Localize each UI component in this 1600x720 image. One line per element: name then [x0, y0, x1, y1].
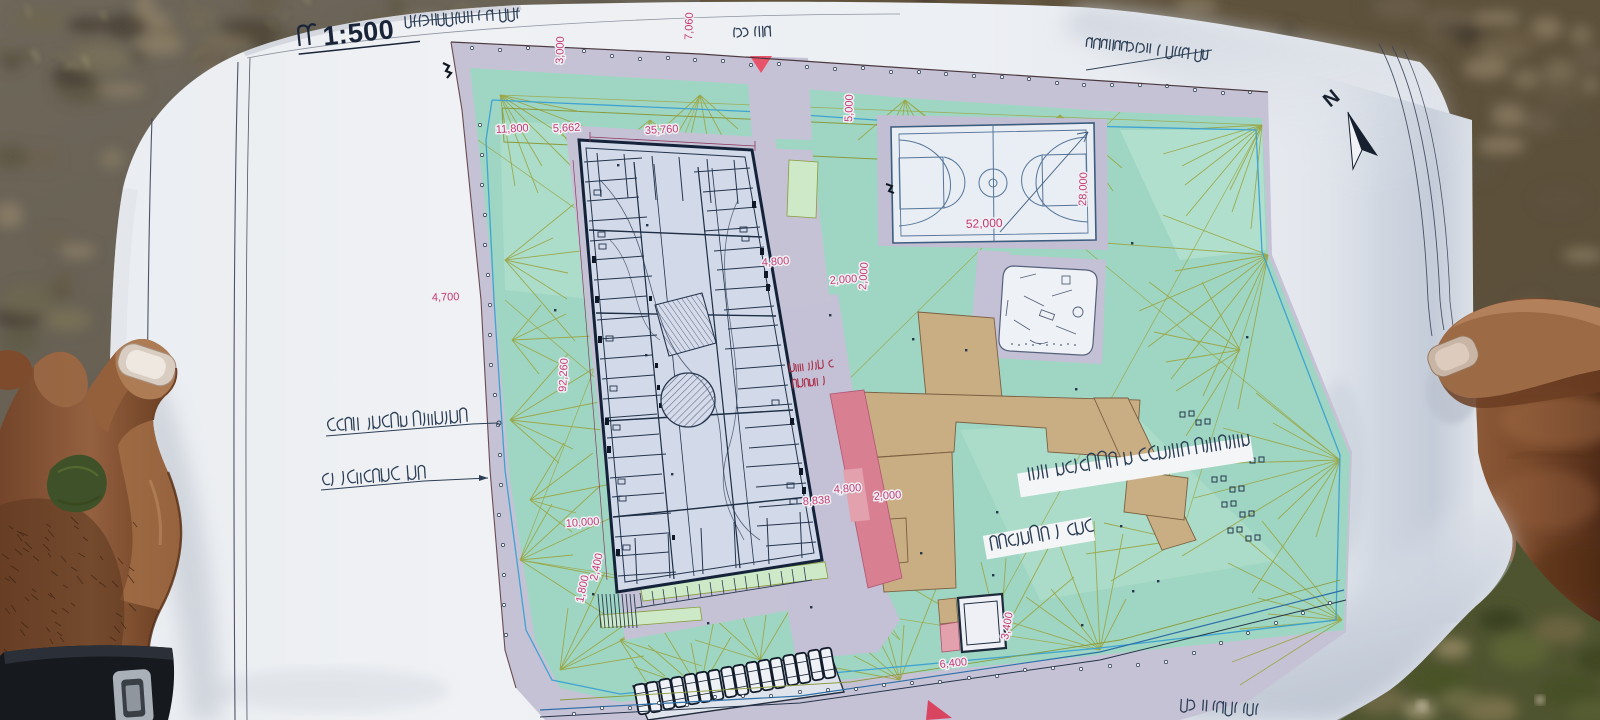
svg-text:28,000: 28,000 — [1077, 172, 1090, 206]
svg-text:4,700: 4,700 — [432, 291, 460, 304]
svg-text:4,800: 4,800 — [761, 255, 789, 269]
svg-text:8,838: 8,838 — [802, 494, 830, 508]
svg-text:2,000: 2,000 — [829, 273, 857, 287]
svg-text:5,662: 5,662 — [553, 122, 581, 135]
svg-text:2,000: 2,000 — [873, 489, 901, 503]
svg-text:35,760: 35,760 — [645, 123, 679, 137]
svg-text:3,000: 3,000 — [554, 36, 567, 64]
svg-text:92,260: 92,260 — [557, 358, 571, 392]
svg-text:4,800: 4,800 — [833, 482, 861, 496]
svg-text:52,000: 52,000 — [966, 216, 1003, 231]
svg-text:11,800: 11,800 — [496, 122, 529, 136]
svg-text:2,000: 2,000 — [857, 262, 871, 290]
svg-text:7,060: 7,060 — [683, 12, 696, 40]
svg-text:5,000: 5,000 — [843, 94, 856, 122]
svg-text:10,000: 10,000 — [565, 516, 599, 530]
